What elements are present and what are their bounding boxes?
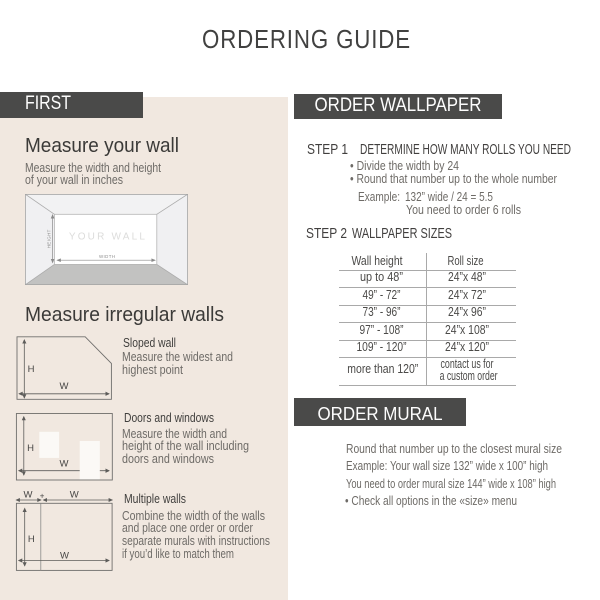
svg-text:H: H — [28, 534, 35, 545]
svg-text:WIDTH: WIDTH — [99, 254, 115, 259]
svg-text:HEIGHT: HEIGHT — [46, 229, 51, 248]
svg-text:YOUR WALL: YOUR WALL — [69, 231, 147, 242]
svg-text:H: H — [28, 364, 35, 375]
svg-text:+: + — [40, 492, 45, 501]
svg-text:W: W — [60, 381, 69, 392]
svg-text:H: H — [27, 443, 34, 454]
svg-text:W: W — [60, 458, 69, 469]
svg-text:W: W — [70, 489, 79, 500]
svg-text:W: W — [60, 550, 69, 561]
svg-text:W: W — [24, 489, 33, 500]
